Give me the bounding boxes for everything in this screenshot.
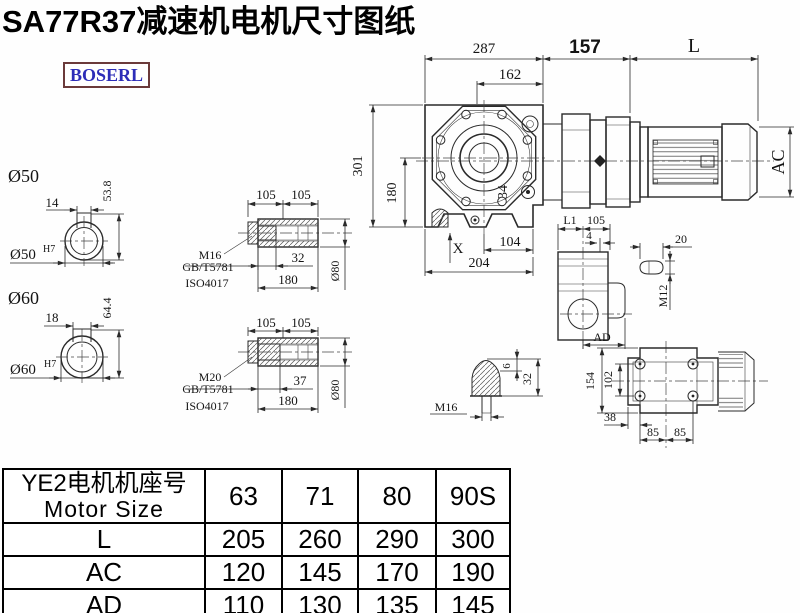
dim-37-depth: 37 [294,373,308,388]
thread-m12-label: M12 [656,285,670,308]
table-header-cell: YE2电机机座号 Motor Size [3,469,205,523]
cell-L-90S: 300 [436,523,510,556]
cell-AC-90S: 190 [436,556,510,589]
dim-32-depth: 32 [292,250,305,265]
dim-157: 157 [569,37,601,58]
key-detail-view: 20 M12 [630,232,692,310]
table-row-AD: AD 110 130 135 145 [3,589,510,613]
dim-105-b: 105 [291,187,311,202]
dim-L1: L1 [563,213,576,227]
cell-AD-71: 130 [282,589,358,613]
hollow-shaft-50-view: 105 105 32 M16 GB/T5781 ISO4017 180 Ø80 [182,187,352,292]
dim-180-a: 180 [278,272,298,287]
column-80: 80 [358,469,436,523]
standard-gb-label-1: GB/T5781 [182,260,233,274]
dim-keyway-14: 14 [46,195,60,210]
breather-plug-detail: M16 6 32 [430,349,543,421]
dim-180-b: 180 [278,393,298,408]
dim-301: 301 [351,156,366,177]
dim-180-vertical: 180 [385,183,400,204]
motor-size-table: YE2电机机座号 Motor Size 63 71 80 90S L 205 2… [2,468,511,613]
standard-iso-label-1: ISO4017 [185,276,228,290]
dim-85-a: 85 [647,425,659,439]
bore-50-label: Ø50 [10,247,36,263]
main-dimensions: 287 162 157 L AC 301 180 X 104 [351,35,794,276]
column-63: 63 [205,469,282,523]
dim-204: 204 [469,256,490,271]
oil-plug [432,209,448,227]
cell-L-80: 290 [358,523,436,556]
dim-4-offset: 4 [586,230,592,242]
brand-logo: BOSERL [63,62,150,88]
gearbox-front-view: 34 [422,100,548,234]
column-90S: 90S [436,469,510,523]
dim-AD: AD [593,330,611,344]
bore-60-label: Ø60 [10,362,36,378]
motor-outline [630,122,757,202]
mounting-flange-view: 154 102 38 85 85 [583,341,768,448]
standard-gb-label-2: GB/T5781 [182,382,233,396]
dim-dia-80-b: Ø80 [328,380,342,401]
dim-20-key: 20 [675,232,687,246]
dim-104: 104 [500,235,521,250]
shaft-60-section-view: Ø60 18 64.4 Ø60 H7 [8,288,124,385]
motor-fins [653,140,718,184]
bore-60-tolerance: H7 [44,359,56,370]
dim-L: L [688,35,700,57]
row-label-L: L [3,523,205,556]
drawing-sheet: 34 [0,0,800,613]
row-label-AC: AC [3,556,205,589]
shaft-50-section-view: Ø50 14 53.8 Ø50 H7 [8,166,124,267]
dim-105-d: 105 [291,315,311,330]
cell-L-63: 205 [205,523,282,556]
dim-105-c: 105 [256,315,276,330]
balance-mark [594,155,606,167]
dim-keyway-18: 18 [46,310,59,325]
table-row-AC: AC 120 145 170 190 [3,556,510,589]
table-header-cn: YE2电机机座号 [4,470,204,497]
dim-162: 162 [499,67,522,83]
cell-AC-71: 145 [282,556,358,589]
shaft-60-title: Ø60 [8,288,39,308]
cell-L-71: 260 [282,523,358,556]
bore-50-tolerance: H7 [43,244,55,255]
row-label-AD: AD [3,589,205,613]
dim-105-a: 105 [256,187,276,202]
table-header-row: YE2电机机座号 Motor Size 63 71 80 90S [3,469,510,523]
dim-287: 287 [473,41,496,57]
hollow-shaft-60-view: 105 105 37 M20 GB/T5781 ISO4017 180 Ø80 [182,315,352,413]
dim-154: 154 [583,372,597,390]
dim-6-tip: 6 [501,363,513,369]
dim-34: 34 [496,185,511,199]
cell-AC-80: 170 [358,556,436,589]
shaft-50-title: Ø50 [8,166,39,186]
lifting-eye-hole [522,116,538,132]
table-row-L: L 205 260 290 300 [3,523,510,556]
standard-iso-label-2: ISO4017 [185,399,228,413]
thread-m16-plug-label: M16 [435,400,458,414]
dim-102: 102 [601,371,615,389]
dim-38: 38 [604,410,616,424]
cell-AC-63: 120 [205,556,282,589]
column-71: 71 [282,469,358,523]
table-header-en: Motor Size [4,497,204,522]
cell-AD-80: 135 [358,589,436,613]
page-title: SA77R37减速机电机尺寸图纸 [2,0,415,41]
dim-dia-80-a: Ø80 [328,261,342,282]
dim-32-plug: 32 [520,373,534,385]
dim-85-b: 85 [674,425,686,439]
dim-X: X [453,241,464,257]
fan-cowl [722,124,757,200]
cell-AD-90S: 145 [436,589,510,613]
reducer-side-view: L1 105 4 AD [558,213,632,352]
cell-AD-63: 110 [205,589,282,613]
dim-64-4: 64.4 [100,298,114,319]
dim-105-side: 105 [587,213,605,227]
dim-53-8: 53.8 [100,181,114,202]
dim-AC: AC [768,149,788,174]
main-assembly-view: 34 [351,35,794,276]
